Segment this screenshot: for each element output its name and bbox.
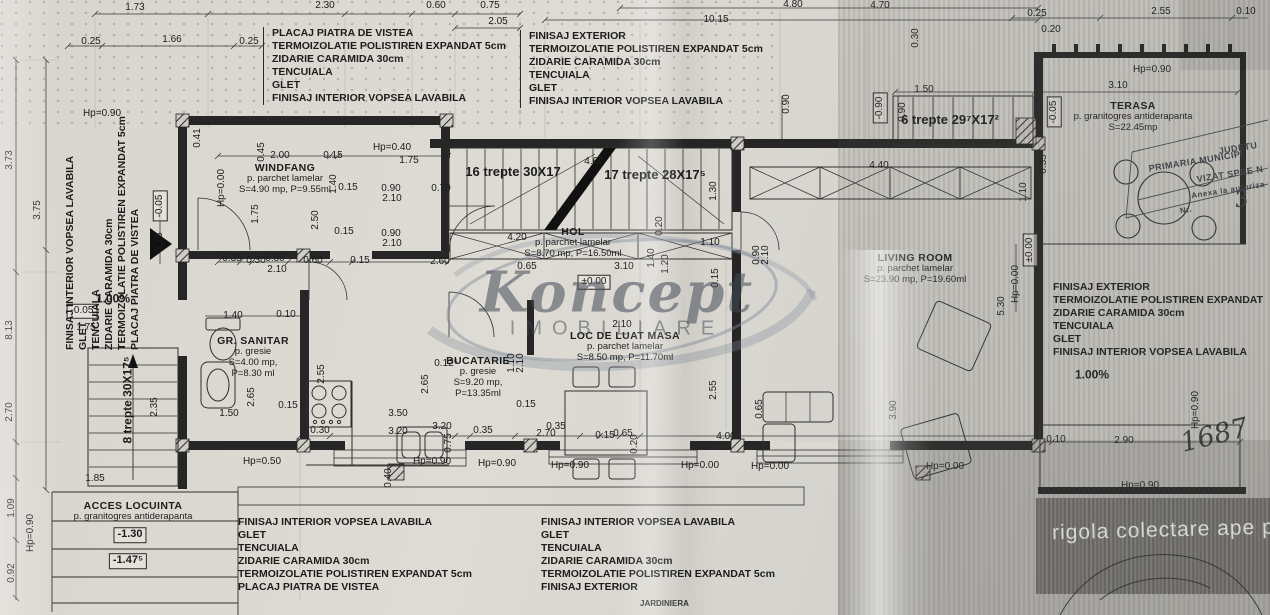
dim-label: 2.10: [612, 320, 631, 331]
dim-label: 0.92: [7, 563, 18, 582]
dim-label: 2.70: [5, 402, 16, 421]
spec-line: FINISAJ EXTERIOR: [541, 581, 775, 594]
room-sub: S=22.45mp: [1074, 123, 1193, 134]
dim-label: Hp=0.90: [413, 457, 451, 468]
spec-line: FINISAJ INTERIOR VOPSEA LAVABILA: [541, 516, 775, 529]
dim-label: Hp=0.00: [217, 169, 228, 207]
dim-label: 3.75: [155, 232, 166, 251]
dim-label: Hp=0.00: [926, 462, 964, 473]
spec-line: ZIDARIE CARAMIDA 30cm: [1053, 307, 1263, 320]
spec-line: ZIDARIE CARAMIDA 30cm: [103, 116, 116, 350]
stair-label-17-trepte: 17 trepte 28X17⁵: [604, 168, 706, 182]
spec-line: ZIDARIE CARAMIDA 30cm: [529, 56, 763, 69]
dim-label: 2.50: [311, 210, 322, 229]
spec-line: FINISAJ INTERIOR VOPSEA LAVABILA: [1053, 346, 1263, 359]
dim-label: 1.10: [700, 238, 719, 249]
dim-label: -0.90: [873, 93, 888, 124]
dim-label: 1.09: [7, 498, 18, 517]
dim-label: 2.10: [516, 353, 527, 372]
room-sub: P=13.35ml: [446, 389, 510, 400]
spec-block-bottom-center: FINISAJ INTERIOR VOPSEA LAVABILAGLETTENC…: [541, 516, 775, 594]
dim-label: 1.50: [219, 409, 238, 420]
dim-label: 0.30: [310, 426, 329, 437]
dim-label: 1.40: [647, 248, 658, 267]
stair-label-16-trepte: 16 trepte 30X17: [465, 165, 560, 179]
dim-label: 0.30: [246, 256, 265, 267]
spec-block-bottom-left: FINISAJ INTERIOR VOPSEA LAVABILAGLETTENC…: [238, 516, 472, 594]
dim-label: 1.30: [709, 181, 720, 200]
dim-label: Hp=0.90: [478, 459, 516, 470]
room-label-loc-de-luat-masa: LOC DE LUAT MASAp. parchet lamelarS=8.50…: [570, 330, 680, 364]
dim-label: 0.60: [426, 1, 445, 12]
spec-line: FINISAJ INTERIOR VOPSEA LAVABILA: [238, 516, 472, 529]
spec-line: TERMOIZOLATIE POLISTIREN EXPANDAT 5cm: [541, 568, 775, 581]
room-label-acces-locuinta: ACCES LOCUINTAp. granitogres antiderapan…: [74, 500, 193, 523]
dim-label: 3.73: [5, 150, 16, 169]
dim-label: 2.10: [761, 245, 772, 264]
dim-label: 0.25: [239, 37, 258, 48]
spec-line: FINISAJ INTERIOR VOPSEA LAVABILA: [529, 95, 763, 108]
dim-label: 1.00%: [1075, 369, 1109, 382]
spec-line: GLET: [541, 529, 775, 542]
dim-label: 1.75: [251, 204, 262, 223]
spec-line: PLACAJ PIATRA DE VISTEA: [238, 581, 472, 594]
spec-line: ZIDARIE CARAMIDA 30cm: [238, 555, 472, 568]
dim-label: 0.41: [193, 128, 204, 147]
dim-label: 3.10: [614, 262, 633, 273]
spec-line: FINISAJ EXTERIOR: [529, 30, 763, 43]
spec-line: GLET: [1053, 333, 1263, 346]
dim-label: -0.05: [153, 191, 168, 222]
dim-label: 0.10: [276, 310, 295, 321]
dim-label: 0.30: [911, 28, 922, 47]
dim-label: Hp=0.50: [243, 457, 281, 468]
dim-label: 2.10: [267, 265, 286, 276]
spec-line: GLET: [529, 82, 763, 95]
dim-label: 2.60: [430, 257, 449, 268]
dim-label: 0.75: [480, 1, 499, 12]
spec-line: TENCUIALA: [529, 69, 763, 82]
dim-label: 1.40: [223, 311, 242, 322]
stair-label-6-trepte: 6 trepte 29⁷X17²: [901, 113, 999, 127]
room-label-terasa: TERASAp. granitogres antiderapantaS=22.4…: [1074, 100, 1193, 134]
dim-label: Hp=0.00: [681, 461, 719, 472]
dim-label: 0.35: [1039, 154, 1050, 173]
spec-line: TERMOIZOLATIE POLISTIREN EXPANDAT 5cm: [238, 568, 472, 581]
spec-block-top-center: FINISAJ EXTERIORTERMOIZOLATIE POLISTIREN…: [520, 30, 763, 108]
spec-line: TERMOIZOLATIE POLISTIREN EXPANDAT 5cm: [529, 43, 763, 56]
dim-label: 0.35: [473, 426, 492, 437]
spec-line: TERMOIZOLATIE POLISTIREN EXPANDAT: [1053, 294, 1263, 307]
room-label-living-room: LIVING ROOMp. parchet lamelarS=23.90 mp,…: [864, 252, 966, 286]
dim-label: Hp=0.90: [551, 461, 589, 472]
dim-label: 0.25: [1027, 9, 1046, 20]
dim-label: 4.00: [716, 432, 735, 443]
dim-label: ±0.00: [1023, 234, 1038, 267]
dim-label: 3.10: [1108, 81, 1127, 92]
dim-label: 2.70: [536, 429, 555, 440]
room-sub: S=4.90 mp, P=9.55ml: [239, 185, 331, 196]
dim-label: Hp=0.90: [1121, 481, 1159, 492]
dim-label: 3.75: [33, 200, 44, 219]
dim-label: 2.55: [317, 364, 328, 383]
dim-label: 8.13: [5, 320, 16, 339]
dim-label: 0.70: [431, 184, 450, 195]
spec-line: TERMOIZOLATIE POLISTIREN EXPANDAT 5cm: [272, 40, 506, 53]
dim-label: 4.80: [783, 0, 802, 10]
dim-label: 0.20: [630, 434, 641, 453]
spec-line: TENCUIALA: [90, 116, 103, 350]
dim-label: -1.30: [113, 527, 146, 543]
dim-label: 0.15: [711, 268, 722, 287]
spec-line: TENCUIALA: [1053, 320, 1263, 333]
dim-label: -1.47⁵: [109, 553, 147, 569]
spec-line: TENCUIALA: [238, 542, 472, 555]
dim-label: 0.90: [782, 94, 793, 113]
dim-label: 1.10: [1019, 182, 1030, 201]
dim-label: 0.75: [444, 433, 455, 452]
spec-line: GLET: [238, 529, 472, 542]
spec-line: PLACAJ PIATRA DE VISTEA: [129, 116, 142, 350]
dim-label: 4.60: [584, 157, 603, 168]
spec-line: ZIDARIE CARAMIDA 30cm: [272, 53, 506, 66]
dim-label: 2.65: [421, 374, 432, 393]
room-label-hol: HOLp. parchet lamelarS=8.70 mp, P=16.50m…: [524, 226, 621, 260]
dim-label: 2.35: [150, 397, 161, 416]
stair-label-8-trepte: 8 trepte 30X17⁵: [122, 356, 135, 443]
room-sub: p. granitogres antiderapanta: [74, 512, 193, 523]
room-sub: S=23.90 mp, P=19.60ml: [864, 275, 966, 286]
dim-label: Hp=0.90: [26, 514, 37, 552]
dim-label: 0.60: [303, 256, 322, 267]
room-label-bucatarie: BUCATARIEp. gresieS=9.20 mp,P=13.35ml: [446, 355, 510, 400]
dim-label: 1.20: [661, 254, 672, 273]
dim-label: 0.10: [1046, 435, 1065, 446]
dim-label: 0.20: [655, 216, 666, 235]
spec-line: FINISAJ INTERIOR VOPSEA LAVABILA: [64, 116, 77, 350]
dim-label: 0.65: [517, 262, 536, 273]
dim-label: 3.20: [432, 422, 451, 433]
dim-label: ±0.00: [578, 275, 611, 290]
room-sub: S=8.50 mp, P=11.70ml: [570, 353, 680, 364]
dim-label: 0.15: [278, 401, 297, 412]
dim-label: 0.80: [265, 254, 284, 265]
spec-line: GLET: [77, 116, 90, 350]
dim-label: Hp=0.90: [1133, 65, 1171, 76]
dim-label: 0.15: [323, 151, 342, 162]
room-label-windfang: WINDFANGp. parchet lamelarS=4.90 mp, P=9…: [239, 162, 331, 196]
dim-label: 0.25: [81, 37, 100, 48]
spec-line: PLACAJ PIATRA DE VISTEA: [272, 27, 506, 40]
dim-label: 2.90: [1114, 436, 1133, 447]
spec-line: FINISAJ EXTERIOR: [1053, 281, 1263, 294]
dim-label: 0.15: [350, 256, 369, 267]
dim-label: 0.15: [338, 183, 357, 194]
dim-label: 1.75: [399, 156, 418, 167]
dim-label: 2.00: [270, 151, 289, 162]
dim-label: 10.15: [703, 15, 728, 26]
floor-plan-page: 1.732.300.600.752.054.8010.154.700.252.5…: [0, 0, 1270, 615]
spec-line: TENCUIALA: [272, 66, 506, 79]
spec-line: TERMOIZOLATIE POLISTIREN EXPANDAT 5cm: [116, 116, 129, 350]
room-sub: P=8.30 ml: [217, 369, 289, 380]
dim-label: 2.10: [382, 194, 401, 205]
dim-label: 0.45: [257, 142, 268, 161]
dim-label: 4.40: [869, 161, 888, 172]
dim-label: 2.55: [1151, 7, 1170, 18]
spec-line: TENCUIALA: [541, 542, 775, 555]
spec-block-right: FINISAJ EXTERIORTERMOIZOLATIE POLISTIREN…: [1053, 281, 1263, 359]
dim-label: 0.40: [384, 468, 395, 487]
dim-label: 3.90: [889, 400, 900, 419]
dim-label: 0.15: [595, 431, 614, 442]
spec-block-left-vertical: FINISAJ INTERIOR VOPSEA LAVABILAGLETTENC…: [64, 116, 142, 350]
dim-label: Hp=0.00: [751, 462, 789, 473]
spec-line: ZIDARIE CARAMIDA 30cm: [541, 555, 775, 568]
dim-label: 2.65: [247, 387, 258, 406]
dim-label: 4.70: [870, 1, 889, 12]
dim-label: 0.15: [516, 400, 535, 411]
spec-line: GLET: [272, 79, 506, 92]
dim-label: 0.20: [1041, 25, 1060, 36]
dim-label: 2.30: [315, 1, 334, 12]
dim-label: 1.73: [125, 3, 144, 14]
room-label-gr-sanitar: GR. SANITARp. gresieS=4.00 mp,P=8.30 ml: [217, 335, 289, 380]
dim-label: 0.65: [755, 399, 766, 418]
dim-label: 2.55: [709, 380, 720, 399]
dim-label: 3.50: [388, 409, 407, 420]
dim-label: 0.15: [334, 227, 353, 238]
room-sub: S=8.70 mp, P=16.50ml: [524, 249, 621, 260]
jardiniera-note: JARDINIERA: [640, 599, 689, 608]
dim-label: 1.50: [914, 85, 933, 96]
dim-label: 2.10: [382, 239, 401, 250]
dim-label: Hp=0.40: [373, 143, 411, 154]
dim-label: 2.05: [488, 17, 507, 28]
dim-label: -0.05: [1047, 97, 1062, 128]
dim-label: Hp=0.00: [1011, 265, 1022, 303]
spec-block-top-left: PLACAJ PIATRA DE VISTEATERMOIZOLATIE POL…: [263, 27, 506, 105]
spec-line: FINISAJ INTERIOR VOPSEA LAVABILA: [272, 92, 506, 105]
dim-label: 3.20: [388, 427, 407, 438]
dim-label: 1.66: [162, 35, 181, 46]
stamp-text: Nr.: [1179, 205, 1192, 216]
dim-label: 0.35: [222, 254, 241, 265]
dim-label: 5.30: [997, 296, 1008, 315]
dim-label: 1.85: [85, 474, 104, 485]
dim-label: 0.10: [1236, 7, 1255, 18]
